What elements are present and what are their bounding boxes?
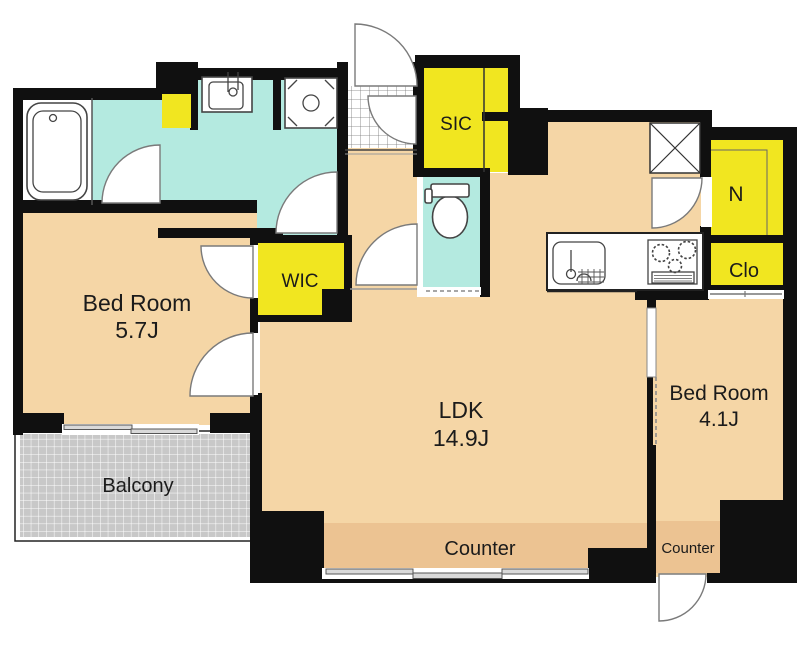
wall-partition-bottom <box>647 445 656 583</box>
wall-washer-stub <box>273 68 281 130</box>
wall-exit-stub <box>707 573 720 583</box>
wall-nook-block <box>156 62 194 98</box>
wall-washroom-entry <box>337 62 348 240</box>
bedroom2-exit-door-arc <box>659 574 706 621</box>
n-storage-floor <box>711 140 783 235</box>
wall-bottom-right-mass <box>720 500 797 583</box>
ldk-label: LDK <box>439 397 484 423</box>
wall-kitchen-top <box>520 110 712 122</box>
balcony-label: Balcony <box>102 475 173 497</box>
counter-sub-label: Counter <box>661 540 714 557</box>
ldk-window-pane-1 <box>326 569 413 574</box>
wall-ldk-bottom-left <box>250 511 324 583</box>
bedroom1-window-pane-2 <box>131 429 197 434</box>
ldk-size-label: 14.9J <box>433 425 489 451</box>
wall-left-outer <box>13 88 23 435</box>
ldk-window-pane-3 <box>502 569 588 574</box>
wall-n-top <box>702 127 797 140</box>
ldk-window-pane-2 <box>413 573 502 579</box>
floor-plan: Bed Room 5.7J LDK 14.9J Bed Room 4.1J Ba… <box>0 0 800 647</box>
bedroom1-label: Bed Room <box>83 290 192 316</box>
kitchen-floor-2 <box>488 173 550 297</box>
clo-label: Clo <box>729 260 759 282</box>
counter-main-label: Counter <box>444 538 515 560</box>
wall-n-clo-divider <box>705 235 783 243</box>
wic-floor-b <box>258 289 322 315</box>
washroom-storage-nook <box>162 94 191 128</box>
wall-partition-mid <box>647 375 653 447</box>
wall-toilet-right <box>480 172 490 297</box>
toilet-tank <box>431 184 469 197</box>
wall-ldk-bottom-right <box>588 548 656 583</box>
wall-bathroom-top <box>13 88 163 100</box>
sic-label: SIC <box>440 114 472 135</box>
wall-toilet-top <box>418 168 490 177</box>
wall-sic-notch <box>482 112 512 121</box>
toilet-threshold-band <box>424 287 481 295</box>
washing-machine-pan-icon <box>285 78 337 128</box>
toilet-bowl <box>433 196 468 238</box>
bedroom2-label: Bed Room <box>669 382 768 405</box>
n-storage-label: N <box>728 183 743 206</box>
entry-door-arc <box>355 24 417 86</box>
bedroom1-size-label: 5.7J <box>115 317 158 343</box>
wall-bedroom1-bottom-left <box>13 413 64 433</box>
sliding-partition-panel <box>647 308 656 377</box>
wic-label: WIC <box>282 271 319 292</box>
bedroom1-window-pane-1 <box>64 425 132 430</box>
toilet-handle <box>425 189 432 203</box>
n-door-gap <box>701 177 712 227</box>
bedroom2-size-label: 4.1J <box>699 408 739 431</box>
floor-plan-drawing: Bed Room 5.7J LDK 14.9J Bed Room 4.1J Ba… <box>0 0 800 647</box>
wall-sic-top <box>415 55 520 68</box>
